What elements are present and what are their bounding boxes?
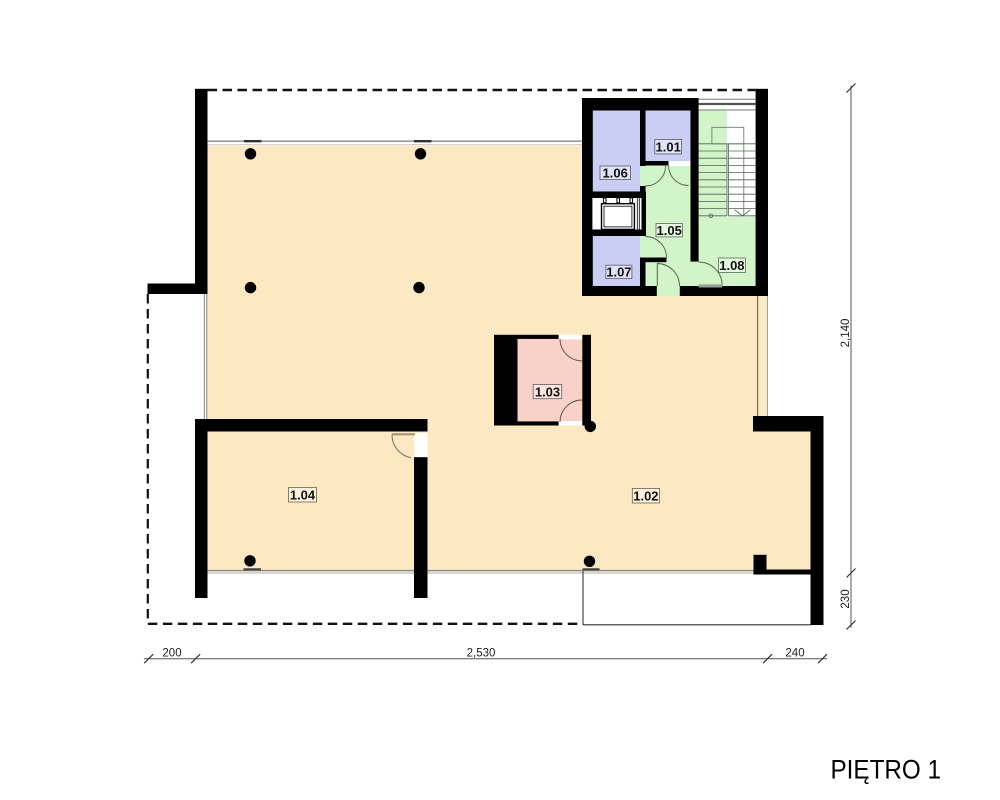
svg-text:1.07: 1.07 — [606, 265, 631, 280]
svg-text:2,140: 2,140 — [840, 319, 852, 348]
svg-text:PIĘTRO 1: PIĘTRO 1 — [831, 755, 942, 785]
svg-text:1.03: 1.03 — [535, 384, 560, 399]
svg-text:230: 230 — [840, 589, 852, 608]
svg-text:1.06: 1.06 — [603, 166, 628, 181]
svg-text:1.08: 1.08 — [719, 258, 744, 273]
svg-text:1.01: 1.01 — [656, 140, 681, 155]
svg-text:240: 240 — [785, 648, 804, 660]
svg-text:1.02: 1.02 — [633, 488, 658, 503]
svg-text:200: 200 — [162, 648, 181, 660]
svg-text:1.05: 1.05 — [657, 223, 682, 238]
svg-text:1.04: 1.04 — [290, 487, 316, 502]
svg-text:2,530: 2,530 — [467, 648, 496, 660]
